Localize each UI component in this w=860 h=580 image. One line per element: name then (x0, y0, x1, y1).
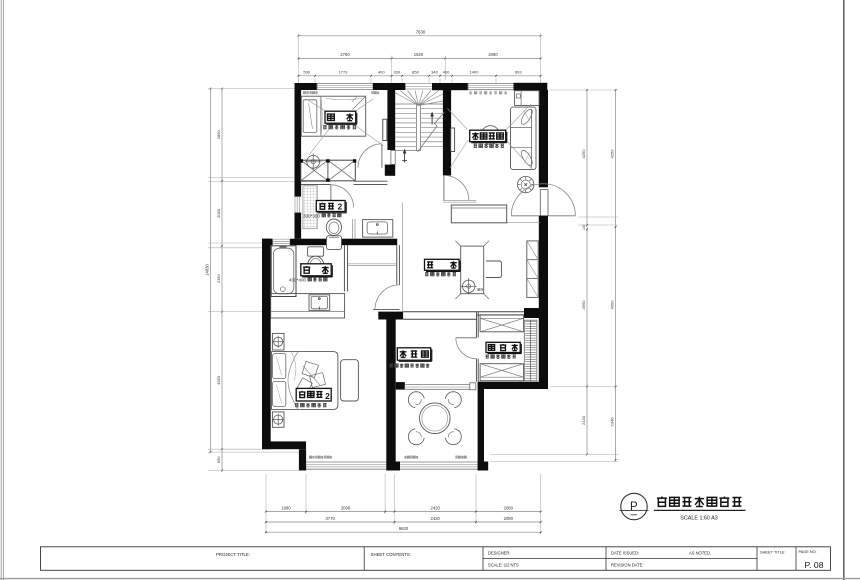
svg-text:400: 400 (378, 70, 385, 75)
svg-text:4350: 4350 (216, 375, 221, 385)
svg-text:400*400: 400*400 (289, 278, 307, 283)
svg-text:340: 340 (431, 70, 438, 75)
svg-text:2850: 2850 (216, 130, 221, 140)
svg-text:P: P (630, 501, 638, 513)
svg-text:300*300: 300*300 (303, 213, 321, 218)
svg-text:SHEET CONTENTS:: SHEET CONTENTS: (371, 552, 411, 557)
svg-text:4950: 4950 (609, 300, 614, 310)
svg-text:PROJECT TITLE:: PROJECT TITLE: (216, 552, 250, 557)
svg-text:2420: 2420 (431, 516, 441, 521)
svg-text:REVISION DATE:: REVISION DATE: (611, 562, 643, 567)
svg-text:400: 400 (443, 70, 450, 75)
svg-text:2340: 2340 (609, 417, 614, 427)
svg-text:1773: 1773 (339, 70, 349, 75)
svg-text:P. 08: P. 08 (805, 560, 824, 570)
svg-text:7630: 7630 (416, 30, 426, 35)
svg-text:DATE ISSUED:: DATE ISSUED: (611, 551, 639, 556)
svg-text:2760: 2760 (340, 52, 350, 57)
svg-text:SCALE 1:60 A3: SCALE 1:60 A3 (680, 515, 717, 521)
svg-text:2150: 2150 (216, 273, 221, 283)
svg-text:PAGE NO:: PAGE NO: (799, 550, 817, 554)
svg-text:330: 330 (393, 70, 400, 75)
svg-text:2080: 2080 (504, 505, 514, 510)
svg-text:14830: 14830 (204, 264, 209, 276)
svg-text:2140: 2140 (581, 415, 586, 425)
svg-text:2420: 2420 (431, 505, 441, 510)
svg-text:1400: 1400 (470, 70, 480, 75)
svg-text:2090: 2090 (341, 505, 351, 510)
svg-text:SHEET TITLE:: SHEET TITLE: (760, 549, 786, 554)
svg-text:650: 650 (216, 456, 221, 463)
svg-text:SCALE: 1/2 NTS: SCALE: 1/2 NTS (488, 562, 519, 567)
svg-text:4250: 4250 (581, 149, 586, 159)
svg-text:500: 500 (303, 70, 310, 75)
svg-text:693: 693 (515, 70, 522, 75)
svg-text:AS NOTED.: AS NOTED. (689, 551, 711, 556)
svg-text:9630: 9630 (399, 526, 409, 531)
svg-text:2: 2 (338, 203, 343, 212)
svg-text:1680: 1680 (281, 505, 291, 510)
svg-text:2090: 2090 (504, 516, 514, 521)
svg-text:2050: 2050 (216, 208, 221, 218)
svg-text:DESIGNER:: DESIGNER: (488, 551, 511, 556)
svg-text:2: 2 (325, 391, 330, 401)
svg-text:3770: 3770 (326, 516, 336, 521)
svg-text:1540: 1540 (414, 52, 424, 57)
svg-text:2060: 2060 (488, 52, 498, 57)
svg-text:4950: 4950 (581, 300, 586, 310)
svg-text:4250: 4250 (609, 149, 614, 159)
svg-text:850: 850 (412, 70, 419, 75)
